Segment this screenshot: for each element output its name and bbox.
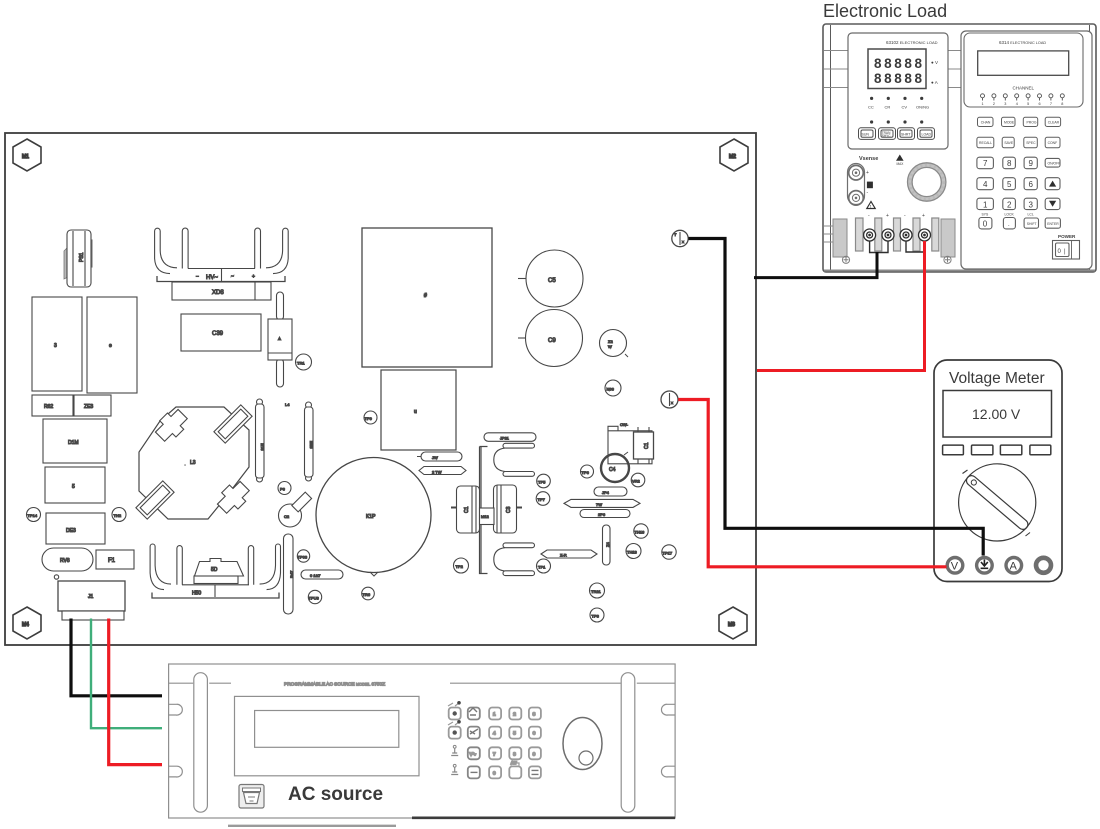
svg-text:Z-R: Z-R [560, 553, 567, 558]
svg-text:C1: C1 [644, 442, 650, 449]
svg-text:TR6: TR6 [363, 592, 371, 597]
svg-text:▲: ▲ [277, 336, 282, 342]
svg-text:● A: ● A [931, 80, 938, 85]
svg-text:Z4: Z4 [605, 542, 610, 547]
svg-text:SYS: SYS [982, 213, 990, 217]
svg-text:TP6: TP6 [582, 470, 590, 475]
svg-text:+: + [866, 170, 869, 176]
svg-text:5D: 5D [211, 567, 218, 573]
svg-text:C1: C1 [464, 506, 470, 513]
svg-text:x: x [682, 239, 684, 244]
svg-text:CW-: CW- [620, 422, 629, 427]
svg-text:SHIFT: SHIFT [1027, 222, 1037, 226]
svg-text:C4: C4 [609, 467, 616, 473]
svg-text:V∿: V∿ [470, 751, 477, 756]
svg-text:M12: M12 [481, 514, 490, 519]
svg-text:POWER: POWER [1058, 234, 1076, 239]
svg-text:JW: JW [432, 455, 438, 460]
svg-text:CV: CV [902, 105, 908, 110]
svg-text:5: 5 [1007, 180, 1012, 189]
svg-text:VR2: VR2 [632, 479, 641, 484]
svg-text:6: 6 [1029, 180, 1034, 189]
svg-text:C5: C5 [548, 278, 556, 284]
svg-text:H50: H50 [192, 591, 201, 597]
svg-text:6314 ELECTRONIC LOAD: 6314 ELECTRONIC LOAD [999, 40, 1046, 45]
svg-text:1: 1 [982, 102, 984, 106]
svg-text:XD8: XD8 [212, 290, 224, 296]
svg-text:2 TW: 2 TW [432, 470, 442, 475]
svg-text:7: 7 [1050, 102, 1052, 106]
svg-text:K1P: K1P [366, 514, 376, 520]
svg-text:L3: L3 [190, 460, 196, 466]
svg-text:3: 3 [1004, 102, 1006, 106]
svg-text:7W: 7W [596, 502, 602, 507]
svg-text:1: 1 [983, 200, 988, 209]
svg-text:M3: M3 [728, 622, 735, 628]
svg-text:88888: 88888 [874, 71, 922, 86]
svg-text:JP4: JP4 [602, 490, 610, 495]
svg-text:SUN: SUN [862, 133, 870, 137]
svg-text:CHANNEL: CHANNEL [1013, 86, 1035, 91]
svg-text:PS1: PS1 [79, 252, 85, 262]
svg-text:3: 3 [54, 343, 57, 349]
svg-text:CC: CC [868, 105, 874, 110]
svg-text:LCL: LCL [1028, 213, 1034, 217]
svg-text:J1: J1 [88, 594, 94, 600]
svg-text:TH16: TH16 [635, 530, 646, 535]
svg-text:5: 5 [1027, 102, 1029, 106]
svg-text:SPEC: SPEC [1026, 141, 1036, 145]
svg-text:RV8: RV8 [60, 558, 70, 564]
svg-text:ON/NG: ON/NG [916, 105, 929, 110]
svg-text:C2: C2 [284, 514, 290, 519]
svg-text:0 1&7: 0 1&7 [310, 573, 321, 578]
svg-text:+: + [252, 274, 255, 280]
svg-text:3: 3 [1029, 200, 1034, 209]
svg-text:2P6: 2P6 [598, 512, 606, 517]
svg-text:ALT: ALT [511, 761, 517, 765]
svg-text:+: + [922, 213, 925, 219]
svg-text:0: 0 [983, 220, 988, 229]
svg-text:TP14: TP14 [28, 513, 38, 518]
svg-text:12.00 V: 12.00 V [972, 406, 1021, 422]
svg-text:PROG: PROG [1027, 121, 1037, 125]
svg-text:TP7: TP7 [538, 497, 546, 502]
svg-text:TPU8: TPU8 [309, 596, 320, 601]
svg-text:CHAN: CHAN [981, 121, 991, 125]
svg-text:AC source: AC source [288, 784, 383, 805]
svg-text:V: V [951, 561, 959, 573]
svg-text:TH13: TH13 [627, 550, 638, 555]
svg-text:4: 4 [1016, 102, 1018, 106]
svg-text:R47: R47 [289, 570, 294, 578]
svg-text:TP1: TP1 [538, 565, 546, 570]
svg-text:!: ! [870, 204, 871, 209]
svg-text:4: 4 [983, 180, 988, 189]
svg-text:5: 5 [72, 484, 75, 490]
svg-text:ON/OFF: ON/OFF [1048, 162, 1061, 166]
svg-text:A: A [1010, 561, 1018, 573]
svg-text:D1M: D1M [68, 440, 79, 446]
svg-text:PROGRAMMABLE AC SOURCE MODE: PROGRAMMABLE AC SOURCE MODEL 6750Z [284, 681, 385, 687]
svg-text:u: u [414, 409, 417, 415]
svg-text:MAX: MAX [897, 162, 905, 166]
svg-text:CLEAR: CLEAR [1048, 121, 1060, 125]
svg-text:C9: C9 [548, 338, 556, 344]
svg-text:Voltage Meter: Voltage Meter [949, 370, 1045, 387]
svg-text:SAVE: SAVE [1004, 141, 1014, 145]
svg-text:3BE: 3BE [309, 441, 314, 449]
svg-text:x: x [671, 400, 673, 405]
svg-text:M2: M2 [729, 154, 736, 160]
svg-text:W: W [608, 344, 612, 349]
svg-text:+: + [886, 213, 889, 219]
svg-text:C39: C39 [212, 331, 224, 337]
svg-text:MODE: MODE [1004, 121, 1015, 125]
svg-text:~: ~ [231, 274, 234, 280]
svg-text:TH2: TH2 [114, 513, 122, 518]
svg-text:LOCK: LOCK [1005, 213, 1015, 217]
svg-text:N06: N06 [607, 387, 615, 392]
svg-text:F1: F1 [108, 558, 116, 564]
svg-text:TR21: TR21 [591, 589, 602, 594]
svg-text:TP03: TP03 [298, 555, 308, 560]
svg-text:ZE3: ZE3 [84, 404, 93, 410]
svg-text:TP8: TP8 [592, 614, 600, 619]
svg-text:● V: ● V [931, 60, 938, 65]
svg-text:HV~: HV~ [206, 275, 218, 281]
svg-text:L4: L4 [285, 402, 290, 407]
svg-text:SHYC: SHYC [882, 134, 892, 138]
svg-text:M1: M1 [22, 154, 29, 160]
svg-text:TP17: TP17 [663, 551, 673, 556]
svg-text:9: 9 [1029, 159, 1034, 168]
svg-text:LOAD: LOAD [922, 133, 932, 137]
svg-text:e: e [109, 343, 112, 349]
svg-text:88888: 88888 [874, 56, 922, 71]
svg-text:P6: P6 [280, 487, 286, 492]
svg-text:#: # [424, 293, 427, 299]
svg-text:2: 2 [993, 102, 995, 106]
svg-text:CR: CR [885, 105, 891, 110]
svg-text:Electronic Load: Electronic Load [823, 1, 947, 21]
svg-text:DE3: DE3 [66, 528, 76, 534]
svg-text:M4: M4 [22, 622, 29, 628]
svg-text:TP2: TP2 [456, 564, 464, 569]
svg-text:7: 7 [983, 159, 988, 168]
svg-text:RECALL: RECALL [979, 141, 992, 145]
svg-text:8: 8 [1061, 102, 1063, 106]
svg-text:63102 ELECTRONIC LOAD: 63102 ELECTRONIC LOAD [886, 40, 938, 45]
svg-text:C3: C3 [506, 506, 512, 513]
svg-text:31E: 31E [260, 443, 265, 450]
svg-text:R62: R62 [44, 404, 53, 410]
svg-text:Vsense: Vsense [859, 156, 878, 162]
svg-text:TP9: TP9 [365, 416, 373, 421]
svg-text:8: 8 [1007, 159, 1012, 168]
svg-text:−: − [196, 274, 199, 280]
svg-text:JP11: JP11 [500, 436, 510, 441]
svg-text:TR1: TR1 [297, 361, 305, 366]
svg-text:TP5: TP5 [538, 480, 546, 485]
svg-text:ENTER: ENTER [1047, 222, 1059, 226]
svg-text:SHRT: SHRT [901, 133, 911, 137]
svg-text:6: 6 [1039, 102, 1041, 106]
svg-text:2: 2 [1007, 200, 1012, 209]
svg-text:CONF: CONF [1048, 141, 1058, 145]
